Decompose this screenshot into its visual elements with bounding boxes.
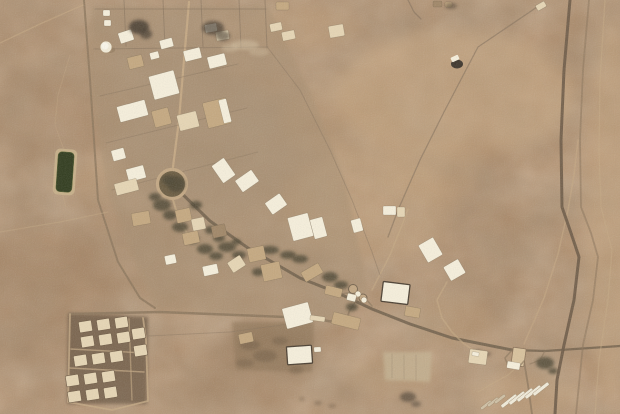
sensor-grain <box>0 0 620 414</box>
satellite-image <box>0 0 620 414</box>
screenshot-root <box>0 0 620 414</box>
grain-overlay <box>0 0 620 414</box>
